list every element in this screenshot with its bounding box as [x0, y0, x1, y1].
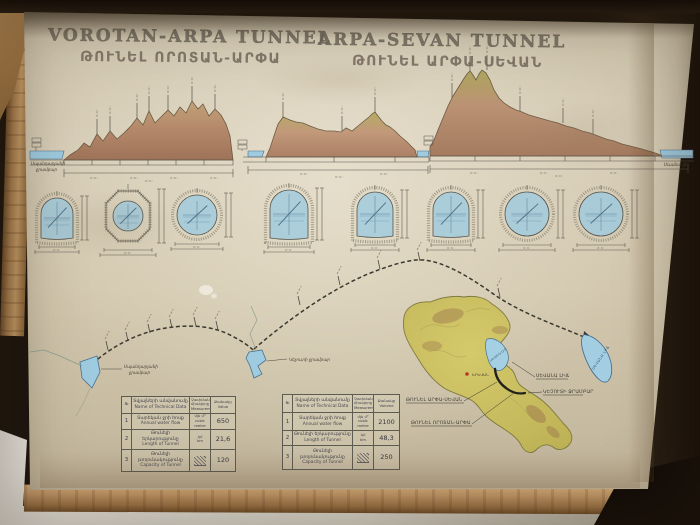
left-profile-reservoir-water	[30, 151, 64, 159]
route-adit-tick	[147, 314, 151, 333]
flow-unit-hatch-symbol	[194, 456, 206, 466]
title-vorotan-arpa-en: VOROTAN-ARPA TUNNEL	[48, 26, 332, 49]
tunnel-cross-section	[499, 185, 565, 252]
spandaryan-label: Սպանդարյանի ջրամբար	[124, 364, 158, 375]
framed-poster-photo: Սևանա լիճ Սպանդարյանի ջրամբար Սպանդարյան…	[0, 0, 700, 525]
kechut-reservoir	[246, 350, 266, 378]
river-line-left	[30, 350, 82, 366]
illegible-handwriting-mark	[377, 250, 381, 258]
tunnel-cross-section	[171, 188, 233, 251]
route-vorotan-arpa	[88, 326, 253, 368]
technical-data-table-vorotan-arpa: № Տվյալների անվանումը Name of Technical …	[121, 396, 236, 472]
row-unit: կմ km	[353, 431, 374, 446]
row-unit-flow-symbol	[353, 445, 374, 469]
left-profile-elevation-marker	[32, 138, 41, 151]
middle-profile-elevation-marker	[238, 140, 247, 151]
svg-text:ջրամբար: ջրամբար	[128, 370, 150, 375]
row-name: Թունելի երկարությունը Length of Tunnel	[132, 430, 190, 450]
title-vorotan-arpa-hy: ԹՈՒՆԵԼ ՈՐՈՏԱՆ-ԱՐՓԱ	[80, 49, 281, 67]
route-adit-tick	[417, 242, 421, 261]
route-adit-tick	[377, 250, 381, 269]
route-adit-tick	[125, 322, 129, 341]
callout-lake-sevan: ՍԵՎԱՆԱ ԼԻՃ	[536, 373, 569, 379]
middle-profile-mountains	[266, 112, 417, 157]
row-num: 3	[283, 445, 293, 469]
middle-profile-water-left	[248, 151, 264, 157]
illegible-handwriting-mark	[105, 331, 109, 339]
illegible-handwriting-mark	[297, 286, 301, 294]
illegible-annotations	[90, 173, 618, 181]
route-adit-tick	[215, 311, 219, 330]
header-num: №	[283, 395, 293, 413]
svg-text:ջրամբար: ջրամբար	[35, 167, 57, 172]
table-header-row: № Տվյալների անվանումը Name of Technical …	[122, 397, 236, 414]
paper-blemish-small	[211, 294, 217, 299]
row-num: 2	[122, 430, 132, 450]
tunnel-cross-section	[35, 191, 89, 254]
middle-profile-baseline	[243, 157, 429, 174]
row-value: 2100	[374, 413, 400, 431]
right-profile-baseline	[430, 156, 694, 173]
table-row: 1 Տարեկան ջրի հոսք Annual water flow մլն…	[283, 413, 400, 431]
spandaryan-reservoir	[80, 356, 100, 388]
illegible-handwriting-mark	[417, 242, 421, 250]
header-unit: Չափման միավորը Measurement	[190, 397, 211, 414]
svg-text:Սպանդարյանի: Սպանդարյանի	[31, 161, 65, 166]
tunnel-cross-section	[427, 185, 485, 252]
left-profile-mountains	[64, 101, 233, 160]
table-header-row: № Տվյալների անվանումը Name of Technical …	[283, 395, 400, 413]
row-unit-flow-symbol	[190, 449, 211, 471]
yerevan-dot	[465, 372, 469, 376]
technical-data-table-arpa-sevan: № Տվյալների անվանումը Name of Technical …	[282, 394, 400, 470]
svg-text:Սպանդարյանի: Սպանդարյանի	[124, 364, 158, 369]
header-unit: Չափման միավորը Measurement	[353, 395, 374, 413]
header-name: Տվյալների անվանումը Name of Technical Da…	[293, 395, 353, 413]
lake-sevan-schematic	[581, 335, 611, 383]
title-arpa-sevan-hy: ԹՈՒՆԵԼ ԱՐՓԱ-ՍԵՎԱՆ	[352, 53, 543, 71]
illegible-handwriting-mark	[497, 278, 501, 286]
table-row: 1 Տարեկան ջրի հոսք Annual water flow մլն…	[122, 413, 236, 430]
illegible-handwriting-mark	[125, 322, 129, 330]
row-name: Թունելի երկարությունը Length of Tunnel	[293, 431, 353, 446]
route-adit-tick	[337, 266, 341, 285]
middle-profile-water-right	[417, 151, 429, 157]
left-profile-water-label: Սպանդարյանի ջրամբար	[31, 161, 65, 172]
middle-profile-section	[238, 112, 429, 174]
yerevan-label: ԵՐԵՎԱՆ	[472, 372, 489, 377]
river-line-left2	[76, 388, 90, 416]
route-adit-tick	[193, 307, 197, 326]
title-arpa-sevan-en: ARPA-SEVAN TUNNEL	[318, 30, 567, 53]
right-profile-section: Սևանա լիճ	[424, 70, 694, 173]
route-adit-tick	[169, 309, 173, 328]
header-qty: Քանակը Value	[211, 397, 236, 414]
illegible-handwriting-mark	[193, 307, 197, 315]
header-name: Տվյալների անվանումը Name of Technical Da…	[132, 397, 190, 414]
flow-unit-hatch-symbol	[357, 453, 369, 463]
callout-tunnel-arpa-sevan: ԹՈՒՆԵԼ ԱՐՓԱ-ՍԵՎԱՆ	[406, 397, 463, 403]
row-unit: մլն մ³ cubic metre	[353, 413, 374, 431]
row-name: Տարեկան ջրի հոսք Annual water flow	[293, 413, 353, 431]
right-profile-water-label: Սևանա լիճ	[664, 162, 689, 167]
row-value: 650	[211, 413, 236, 430]
kechut-label: Կեչուտի ջրամբար	[289, 357, 330, 362]
row-name: Թունելի թողունակությունը Capacity of Tun…	[293, 445, 353, 469]
tunnel-cross-section	[573, 185, 639, 252]
tunnel-cross-section	[351, 185, 409, 252]
route-adit-tick	[497, 278, 501, 297]
illegible-handwriting-mark	[337, 266, 341, 274]
route-adit-tick	[105, 331, 109, 350]
table-row: 3 Թունելի թողունակությունը Capacity of T…	[283, 445, 400, 469]
callout-tunnel-vorotan-arpa: ԹՈՒՆԵԼ ՈՐՈՏԱՆ-ԱՐՓԱ	[411, 420, 471, 426]
paper-blemish	[199, 285, 213, 295]
river-line-kechut	[250, 306, 257, 350]
illegible-handwriting-mark	[215, 311, 219, 319]
row-unit: կմ km	[190, 430, 211, 450]
leader-kechut	[267, 359, 287, 361]
row-unit: մլն մ³ cubic metre	[190, 413, 211, 430]
armenia-map: ՍԵՎԱՆԱ ԼԻՃ ԵՐԵՎԱՆ ԹՈՒՆԵԼ ԱՐՓԱ-ՍԵՎԱՆ ԹՈՒՆ…	[403, 296, 593, 452]
row-num: 3	[122, 449, 132, 471]
row-value: 250	[374, 445, 400, 469]
row-num: 2	[283, 431, 293, 446]
header-num: №	[122, 397, 132, 414]
row-value: 48,3	[374, 431, 400, 446]
row-value: 21,6	[211, 430, 236, 450]
table-row: 2 Թունելի երկարությունը Length of Tunnel…	[283, 431, 400, 446]
tunnel-cross-section	[264, 183, 324, 254]
illegible-handwriting-mark	[147, 314, 151, 322]
row-num: 1	[122, 413, 132, 430]
right-profile-mountains	[430, 70, 663, 156]
row-value: 120	[211, 449, 236, 471]
tunnel-cross-section	[100, 184, 166, 257]
right-profile-sevan-water	[660, 150, 693, 158]
table-row: 2 Թունելի երկարությունը Length of Tunnel…	[122, 430, 236, 450]
callout-kechut-reservoir: ԿԵՉՈՒՏԻ ՋՐԱՄԲԱՐ	[543, 389, 594, 395]
illegible-handwriting-mark	[169, 309, 173, 317]
row-name: Տարեկան ջրի հոսք Annual water flow	[132, 413, 190, 430]
route-adit-tick	[297, 286, 301, 305]
row-num: 1	[283, 413, 293, 431]
row-name: Թունելի թողունակությունը Capacity of Tun…	[132, 449, 190, 471]
table-row: 3 Թունելի թողունակությունը Capacity of T…	[122, 449, 236, 471]
header-qty: Քանակը Volume	[374, 395, 400, 413]
tunnel-cross-sections-row	[35, 183, 639, 257]
